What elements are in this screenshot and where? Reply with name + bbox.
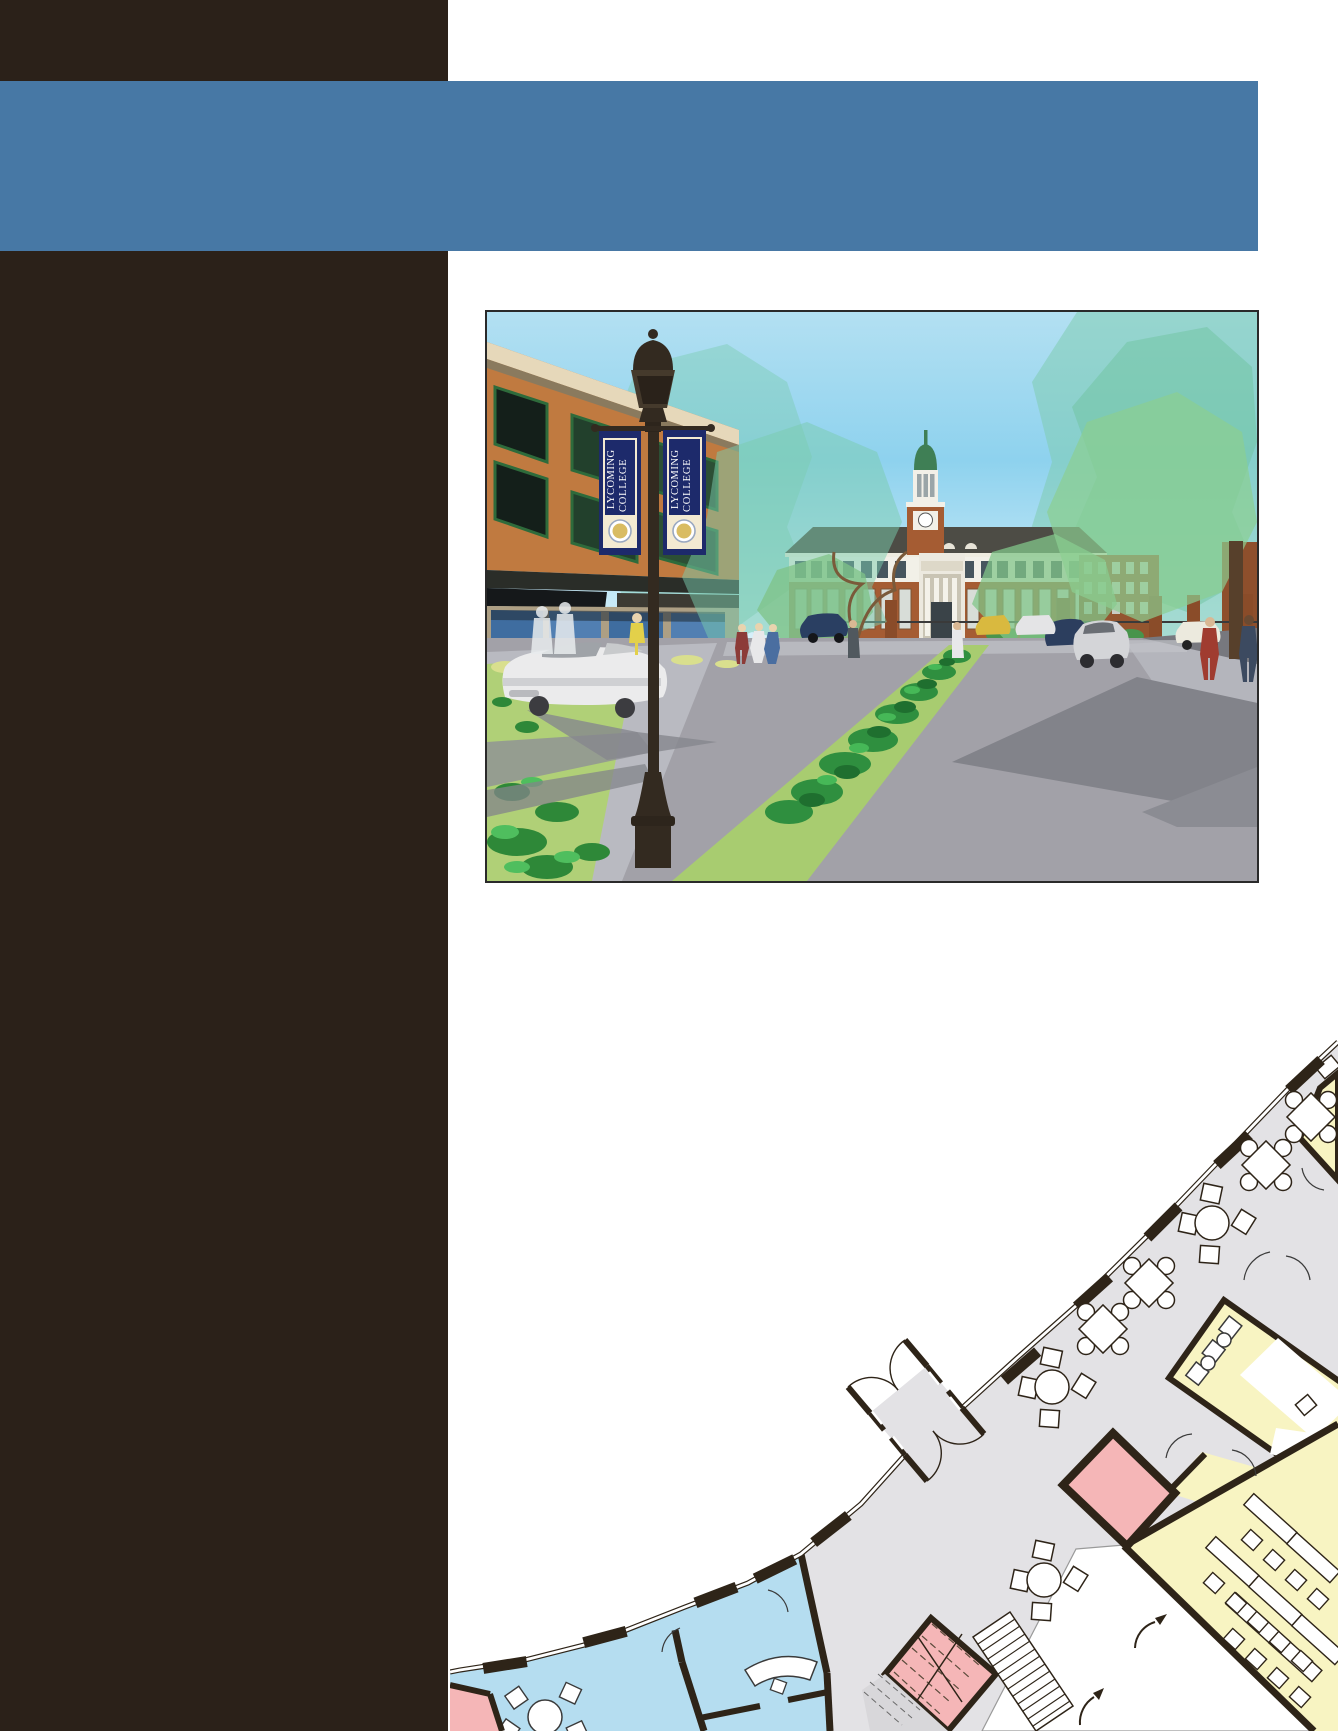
- svg-text:LYCOMING: LYCOMING: [606, 449, 617, 509]
- svg-text:COLLEGE: COLLEGE: [618, 459, 629, 512]
- svg-text:LYCOMING: LYCOMING: [670, 449, 681, 509]
- svg-text:COLLEGE: COLLEGE: [682, 459, 693, 512]
